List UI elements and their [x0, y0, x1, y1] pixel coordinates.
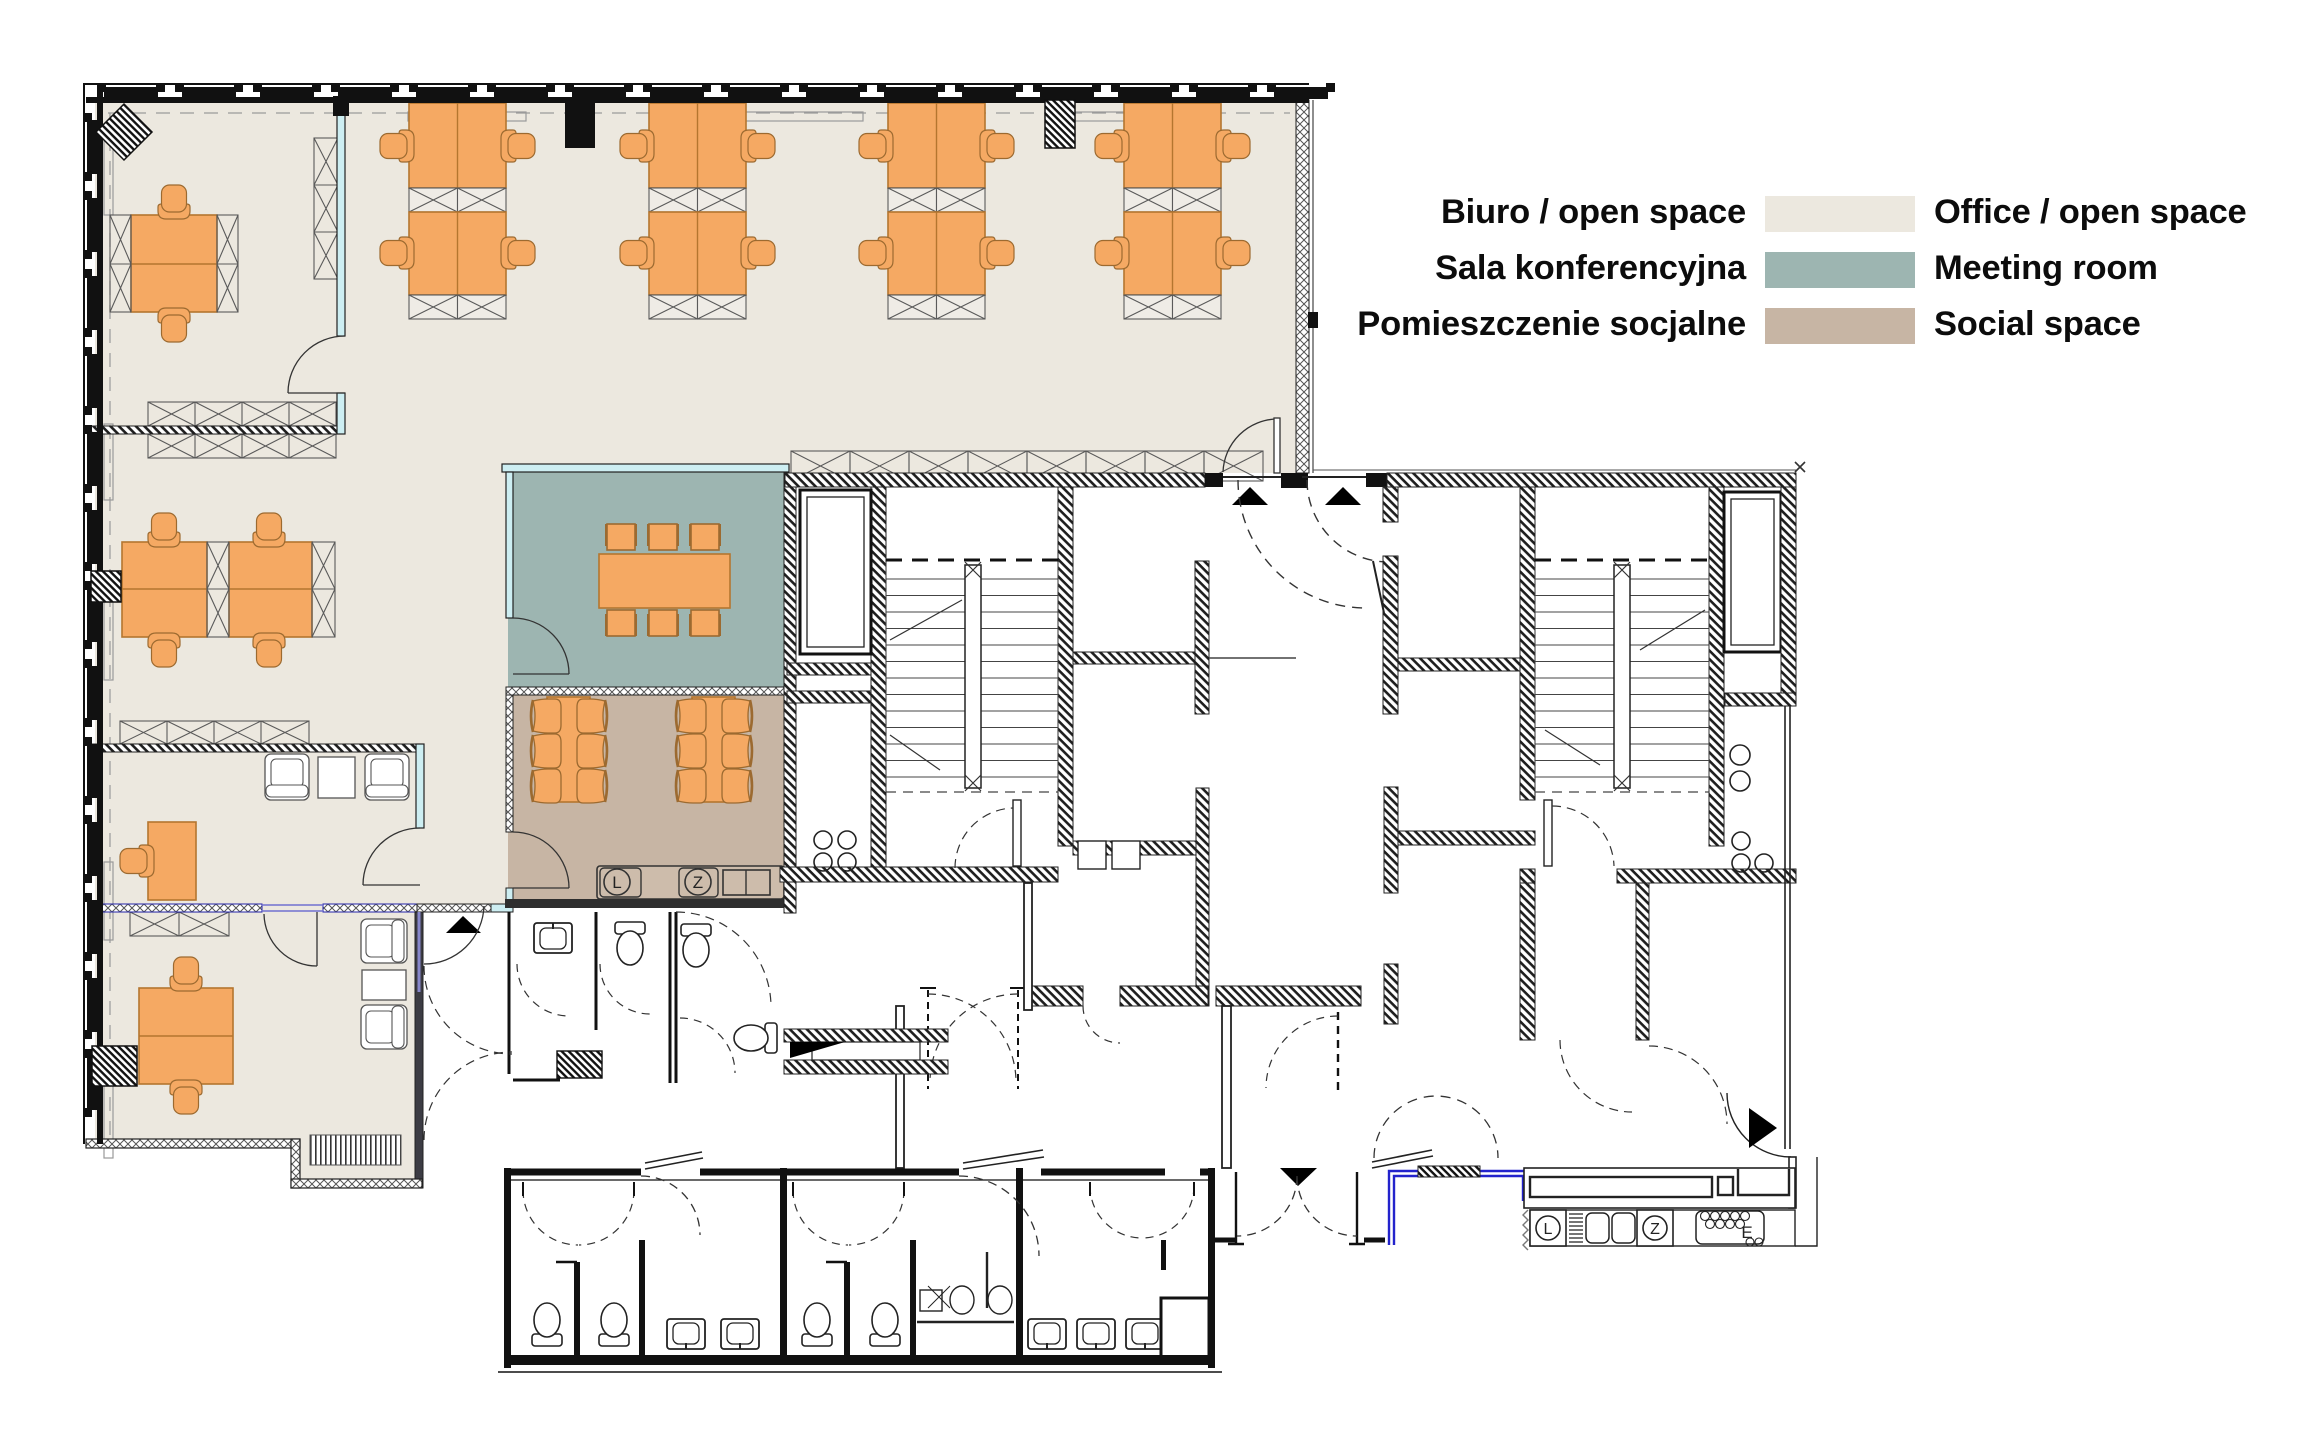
svg-text:Z: Z [693, 873, 703, 892]
svg-text:L: L [1544, 1221, 1553, 1238]
svg-text:Biuro / open space: Biuro / open space [1441, 193, 1746, 231]
svg-text:Z: Z [1650, 1221, 1660, 1238]
svg-text:Office / open space: Office / open space [1934, 193, 2247, 231]
svg-text:L: L [612, 873, 621, 892]
svg-text:Meeting room: Meeting room [1934, 249, 2158, 287]
svg-text:Sala konferencyjna: Sala konferencyjna [1435, 249, 1747, 287]
svg-text:Pomieszczenie socjalne: Pomieszczenie socjalne [1357, 305, 1746, 343]
svg-text:Social space: Social space [1934, 305, 2141, 343]
svg-text:E: E [1741, 1223, 1752, 1242]
